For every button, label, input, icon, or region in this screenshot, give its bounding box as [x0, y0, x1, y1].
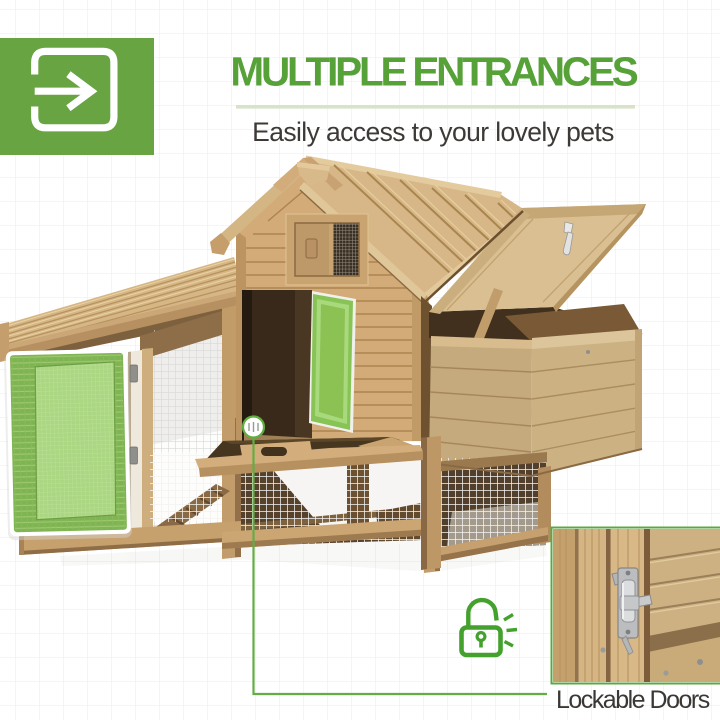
svg-text:Lockable Doors: Lockable Doors: [556, 686, 710, 714]
svg-text:Easily access to your lovely p: Easily access to your lovely pets: [252, 117, 614, 147]
svg-text:MULTIPLE ENTRANCES: MULTIPLE ENTRANCES: [230, 49, 637, 95]
